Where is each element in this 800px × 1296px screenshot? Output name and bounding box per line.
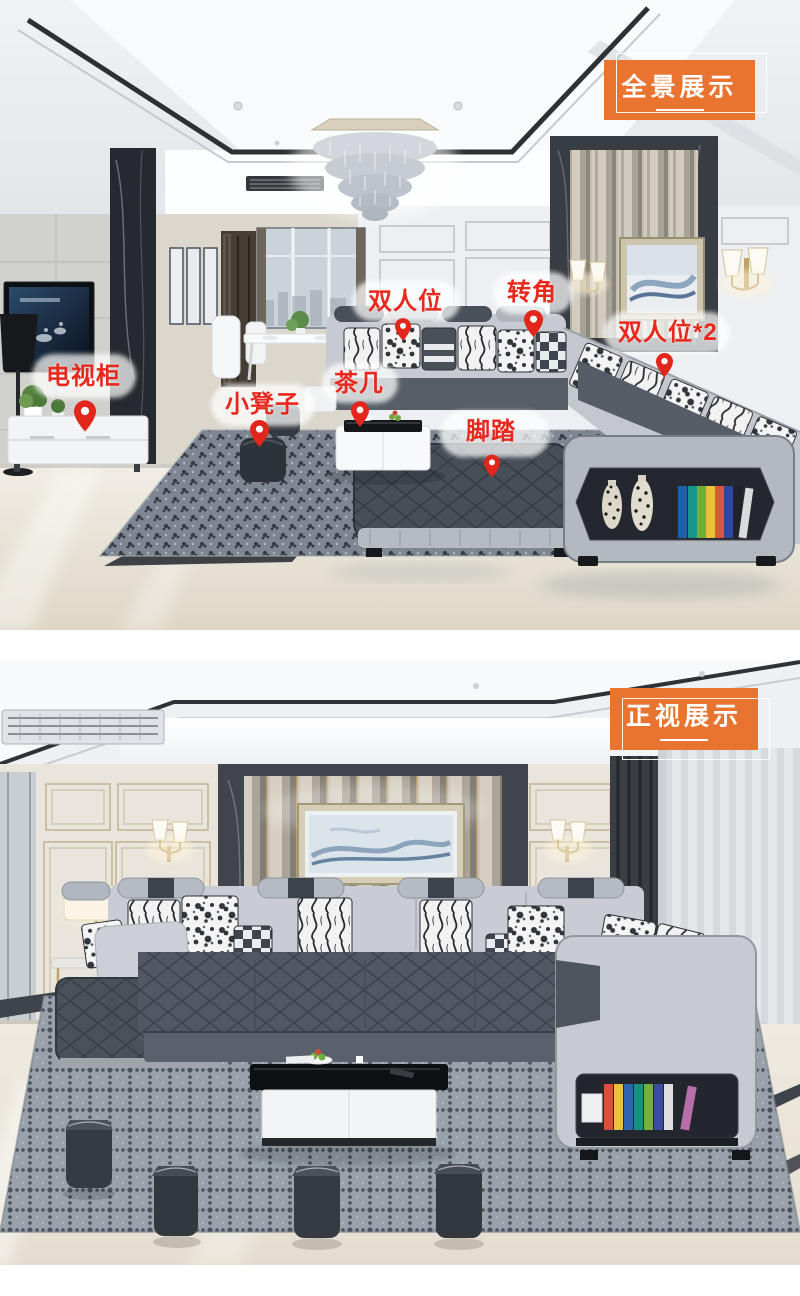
label-small-stool: 小凳子 xyxy=(225,392,300,417)
center-seats xyxy=(138,952,578,1062)
label-two-seater-x2: 双人位*2 xyxy=(618,320,718,345)
location-pin-icon xyxy=(250,419,269,448)
sofa-storage-shelf xyxy=(564,436,794,566)
books xyxy=(604,1084,697,1131)
coffee-table xyxy=(240,1049,456,1166)
label-tv-cabinet: 电视柜 xyxy=(46,364,121,389)
front-view-panel: 正视展示 xyxy=(0,660,800,1265)
badge-underline xyxy=(656,109,704,111)
label-corner-seat: 转角 xyxy=(507,280,557,305)
right-arm-storage xyxy=(556,936,756,1160)
panorama-badge: 全景展示 xyxy=(604,60,755,120)
wall-painting xyxy=(620,238,704,320)
badge-label: 全景展示 xyxy=(604,68,755,104)
label-two-seater: 双人位 xyxy=(368,289,443,314)
badge-label: 正视展示 xyxy=(610,697,758,733)
window xyxy=(0,772,36,1024)
panorama-panel: 全景展示 电视柜 小凳子 茶几 双人位 转角 xyxy=(0,0,800,630)
wall-painting xyxy=(298,804,464,884)
furniture-product-detail-image: 全景展示 电视柜 小凳子 茶几 双人位 转角 xyxy=(0,0,800,1296)
location-pin-icon xyxy=(484,449,500,483)
location-pin-icon xyxy=(656,351,673,379)
location-pin-icon xyxy=(524,309,543,338)
location-pin-icon xyxy=(351,400,369,428)
wall-art-triptych xyxy=(170,248,217,324)
ac-vent xyxy=(2,710,164,744)
location-pin-icon xyxy=(74,396,96,436)
label-footstool: 脚踏 xyxy=(466,419,516,444)
badge-underline xyxy=(660,739,708,741)
label-tea-table: 茶几 xyxy=(334,371,384,396)
front-view-scene-illustration xyxy=(0,660,800,1265)
front-view-badge: 正视展示 xyxy=(610,688,758,750)
location-pin-icon xyxy=(395,316,411,343)
